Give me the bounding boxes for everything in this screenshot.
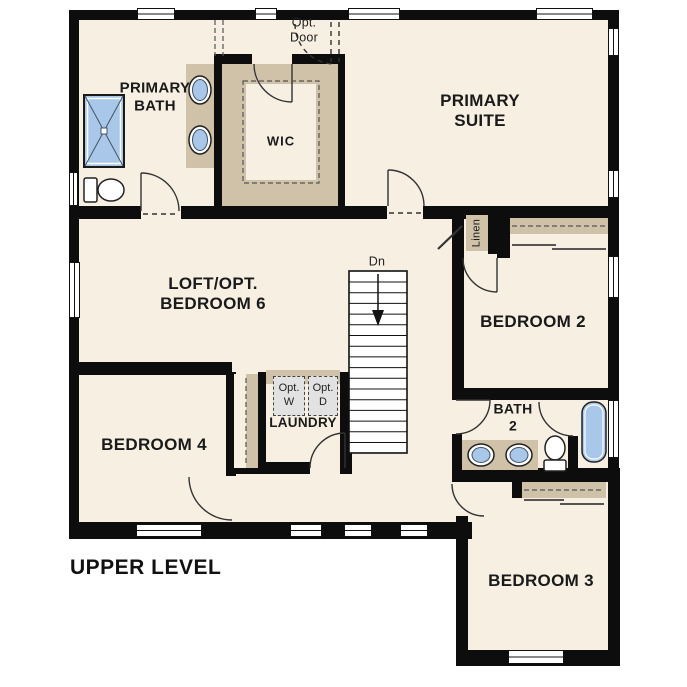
laundry-door-arc [310, 433, 345, 468]
floor-plan: Opt. W Opt. D PRIMARY BATH WIC PRIMARY S… [0, 0, 687, 687]
label-bedroom2: BEDROOM 2 [480, 312, 586, 332]
plan-title: UPPER LEVEL [70, 556, 221, 580]
label-laundry: LAUNDRY [269, 415, 337, 431]
shower [84, 95, 124, 167]
bedroom2-door-arc [463, 258, 497, 292]
linen-door [438, 226, 462, 249]
primary-bath-sinks [189, 76, 211, 154]
bedroom4-door-arc [189, 477, 232, 520]
primary-bath-door-arc [141, 173, 179, 211]
label-stairs-dn: Dn [369, 255, 385, 270]
bath2-door-arc [456, 400, 490, 434]
label-loft: LOFT/OPT. BEDROOM 6 [160, 274, 266, 314]
bath2-compartment-door-arc [539, 402, 573, 436]
bath2-sinks [468, 444, 532, 466]
optional-dryer: Opt. D [308, 376, 338, 416]
label-bedroom3: BEDROOM 3 [488, 571, 594, 591]
label-bedroom4: BEDROOM 4 [101, 435, 207, 455]
bath2-toilet [544, 436, 566, 471]
bedroom3-door-arc [452, 484, 484, 516]
wic-shelf-line [243, 81, 319, 183]
label-linen: Linen [471, 219, 484, 247]
staircase [349, 271, 407, 453]
wic-door-arc [254, 64, 292, 102]
label-primary-suite: PRIMARY SUITE [440, 91, 520, 131]
bathtub [582, 402, 606, 462]
label-opt-door: Opt. Door [290, 15, 318, 45]
optional-washer: Opt. W [273, 376, 305, 416]
primary-bath-toilet [84, 178, 124, 202]
label-primary-bath: PRIMARY BATH [120, 79, 191, 114]
label-wic: WIC [267, 133, 295, 148]
label-bath2: BATH 2 [493, 400, 532, 433]
primary-suite-door-arc [388, 170, 424, 206]
